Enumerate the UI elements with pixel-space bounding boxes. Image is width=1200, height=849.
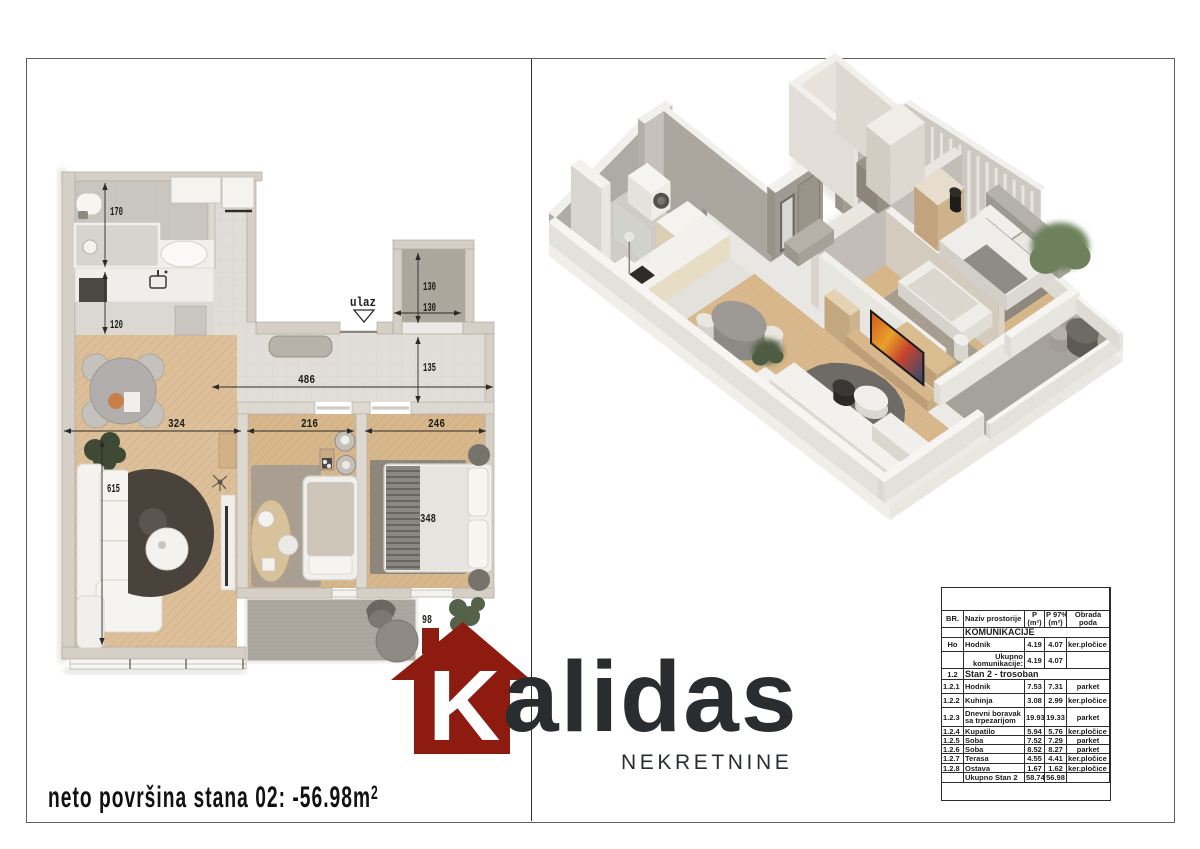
- svg-text:130: 130: [423, 280, 436, 294]
- svg-text:486: 486: [298, 373, 315, 387]
- svg-text:348: 348: [420, 512, 436, 526]
- svg-text:130: 130: [423, 301, 436, 315]
- svg-text:K: K: [428, 650, 500, 762]
- svg-text:246: 246: [428, 417, 445, 431]
- svg-text:324: 324: [168, 417, 185, 431]
- svg-text:615: 615: [107, 482, 120, 496]
- svg-text:135: 135: [423, 361, 436, 375]
- svg-text:170: 170: [110, 205, 123, 219]
- svg-text:216: 216: [301, 417, 318, 431]
- svg-text:ulaz: ulaz: [350, 295, 376, 310]
- svg-text:98: 98: [422, 613, 432, 627]
- svg-text:120: 120: [110, 318, 123, 332]
